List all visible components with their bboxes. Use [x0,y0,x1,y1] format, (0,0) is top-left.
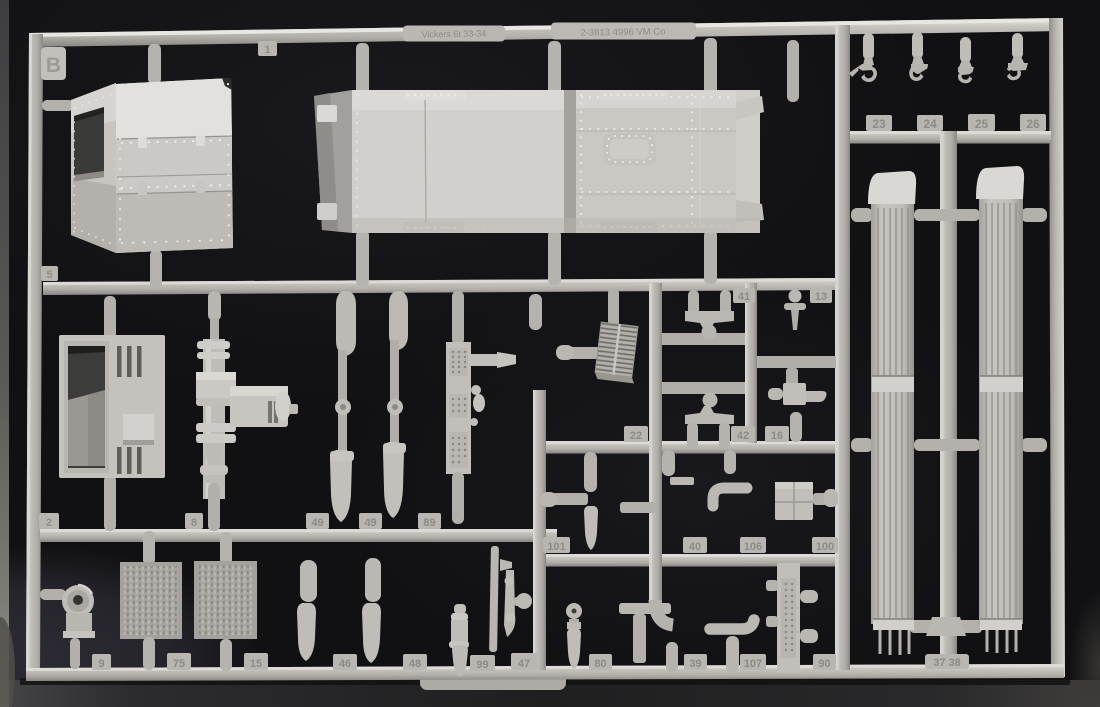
svg-text:99: 99 [476,659,488,671]
svg-text:107: 107 [744,658,762,670]
svg-text:2-3813 4996 VM Co: 2-3813 4996 VM Co [580,26,665,38]
svg-text:101: 101 [547,541,565,553]
svg-text:8: 8 [191,517,197,529]
svg-text:49: 49 [311,517,323,529]
svg-text:100: 100 [816,541,834,553]
svg-text:40: 40 [689,541,701,553]
svg-text:47: 47 [518,658,530,670]
svg-text:Vickers 6t 33-34: Vickers 6t 33-34 [421,29,486,40]
svg-text:80: 80 [594,658,606,670]
svg-text:B: B [46,54,61,77]
svg-text:37 38: 37 38 [933,657,961,669]
svg-text:13: 13 [815,291,827,303]
svg-text:90: 90 [818,658,830,670]
svg-text:75: 75 [173,658,185,670]
svg-text:9: 9 [98,658,104,670]
svg-text:89: 89 [423,517,435,529]
svg-text:16: 16 [771,430,783,442]
svg-text:42: 42 [737,430,749,442]
svg-text:22: 22 [630,430,642,442]
svg-text:2: 2 [46,517,52,529]
svg-text:15: 15 [250,658,262,670]
svg-text:48: 48 [409,658,421,670]
svg-text:5: 5 [46,269,52,281]
svg-text:24: 24 [923,117,937,131]
svg-text:106: 106 [744,541,762,553]
svg-text:1: 1 [264,44,270,56]
svg-text:39: 39 [689,658,701,670]
svg-text:23: 23 [872,117,886,131]
svg-text:26: 26 [1026,117,1040,131]
svg-text:41: 41 [738,291,750,303]
svg-text:46: 46 [339,658,351,670]
svg-text:49: 49 [364,517,376,529]
svg-text:25: 25 [975,117,989,131]
